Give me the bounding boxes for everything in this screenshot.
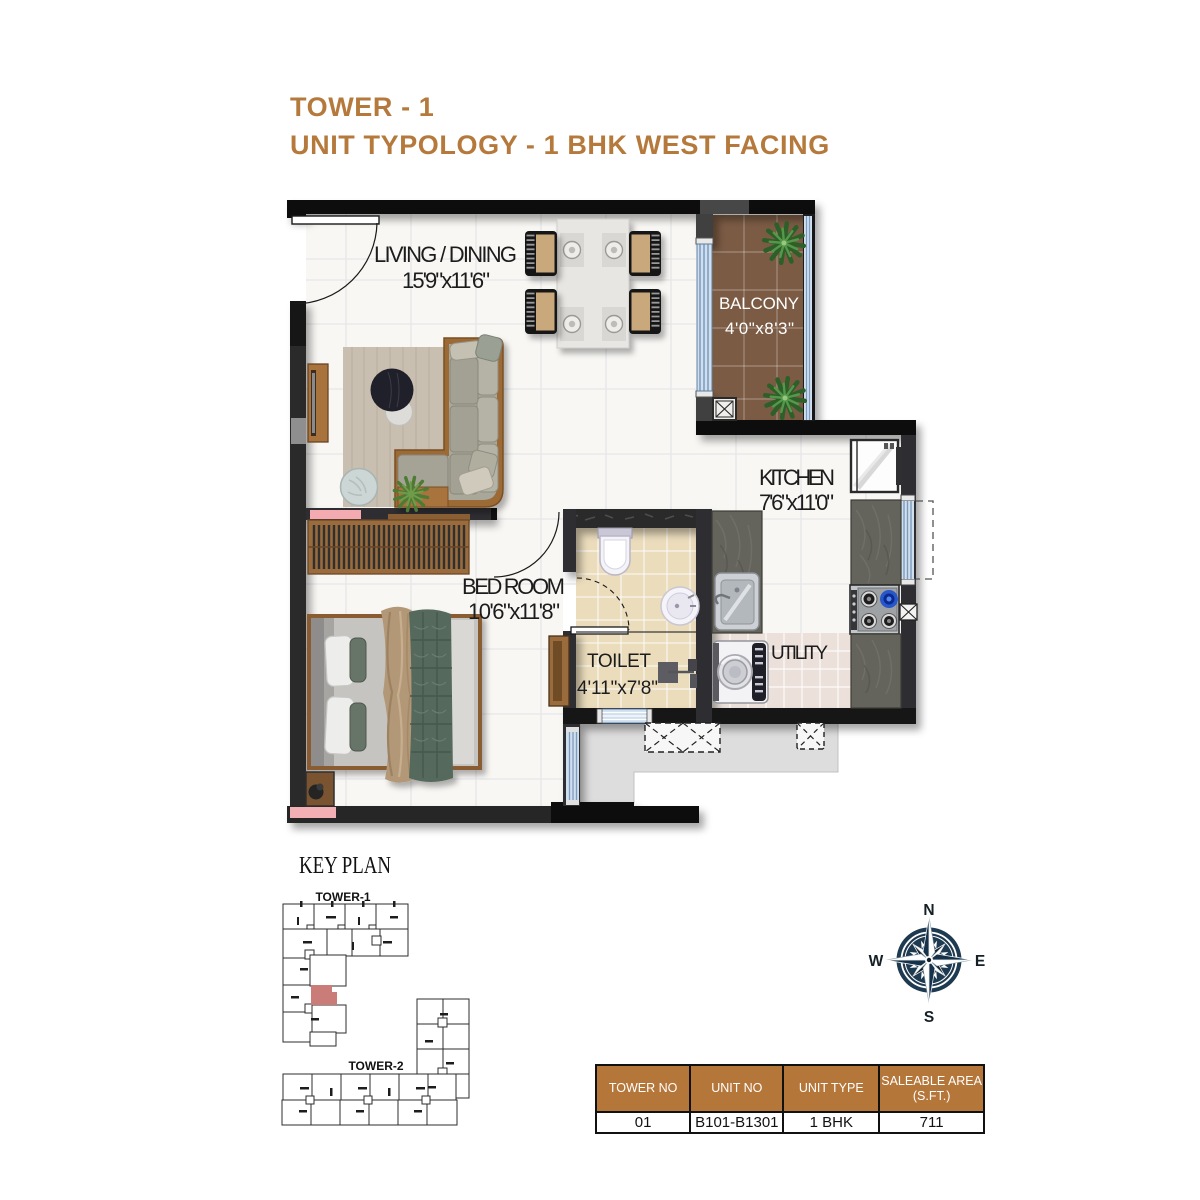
svg-text:4'0"x8'3": 4'0"x8'3"	[725, 319, 794, 338]
svg-text:4'11"x7'8": 4'11"x7'8"	[577, 678, 658, 699]
svg-text:N: N	[923, 902, 934, 919]
svg-text:KEY PLAN: KEY PLAN	[299, 853, 391, 879]
svg-text:TOILET: TOILET	[587, 651, 651, 672]
svg-text:UTILITY: UTILITY	[771, 643, 828, 664]
svg-text:TOWER-2: TOWER-2	[348, 1059, 403, 1073]
svg-text:15'9"x11'6": 15'9"x11'6"	[402, 268, 490, 293]
svg-text:S: S	[924, 1009, 934, 1026]
svg-text:BALCONY: BALCONY	[719, 294, 799, 313]
svg-text:KITCHEN: KITCHEN	[759, 465, 835, 490]
svg-text:E: E	[975, 953, 985, 970]
svg-text:W: W	[869, 953, 884, 970]
svg-text:7'6"x11'0": 7'6"x11'0"	[759, 490, 834, 515]
svg-text:LIVING / DINING: LIVING / DINING	[374, 242, 517, 267]
svg-text:10'6"x11'8": 10'6"x11'8"	[468, 599, 560, 624]
svg-text:BED ROOM: BED ROOM	[462, 574, 565, 599]
